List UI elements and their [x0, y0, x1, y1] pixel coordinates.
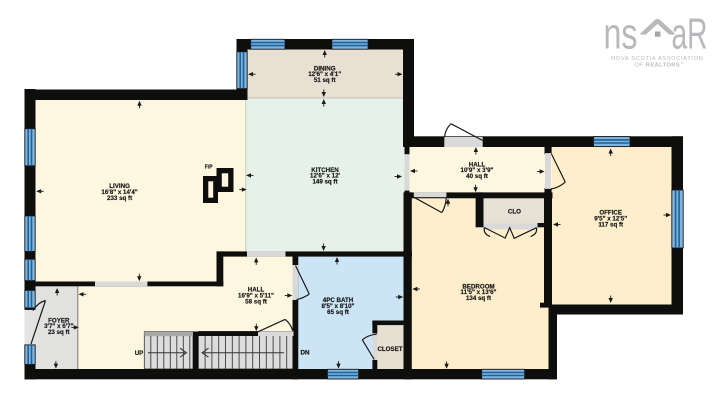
svg-text:UP: UP	[135, 350, 144, 357]
svg-text:149 sq ft: 149 sq ft	[312, 179, 337, 186]
svg-text:233 sq ft: 233 sq ft	[107, 195, 132, 202]
svg-text:DN: DN	[301, 350, 310, 357]
svg-text:CLO: CLO	[508, 209, 521, 216]
svg-text:51 sq ft: 51 sq ft	[314, 77, 336, 84]
svg-text:F/P: F/P	[205, 164, 213, 170]
svg-text:134 sq ft: 134 sq ft	[466, 295, 491, 302]
svg-text:23 sq ft: 23 sq ft	[48, 329, 70, 336]
svg-text:65 sq ft: 65 sq ft	[327, 309, 349, 316]
svg-text:REALTORS: REALTORS	[646, 62, 680, 68]
svg-text:ns: ns	[604, 9, 638, 58]
svg-text:NOVA SCOTIA ASSOCIATION: NOVA SCOTIA ASSOCIATION	[611, 56, 703, 62]
svg-text:aR: aR	[672, 9, 708, 58]
svg-text:117 sq ft: 117 sq ft	[598, 221, 623, 228]
svg-text:40 sq ft: 40 sq ft	[466, 173, 488, 180]
svg-text:OF: OF	[635, 62, 644, 68]
svg-text:CLOSET: CLOSET	[377, 346, 402, 353]
svg-text:58 sq ft: 58 sq ft	[245, 298, 267, 305]
svg-text:®: ®	[681, 61, 684, 65]
